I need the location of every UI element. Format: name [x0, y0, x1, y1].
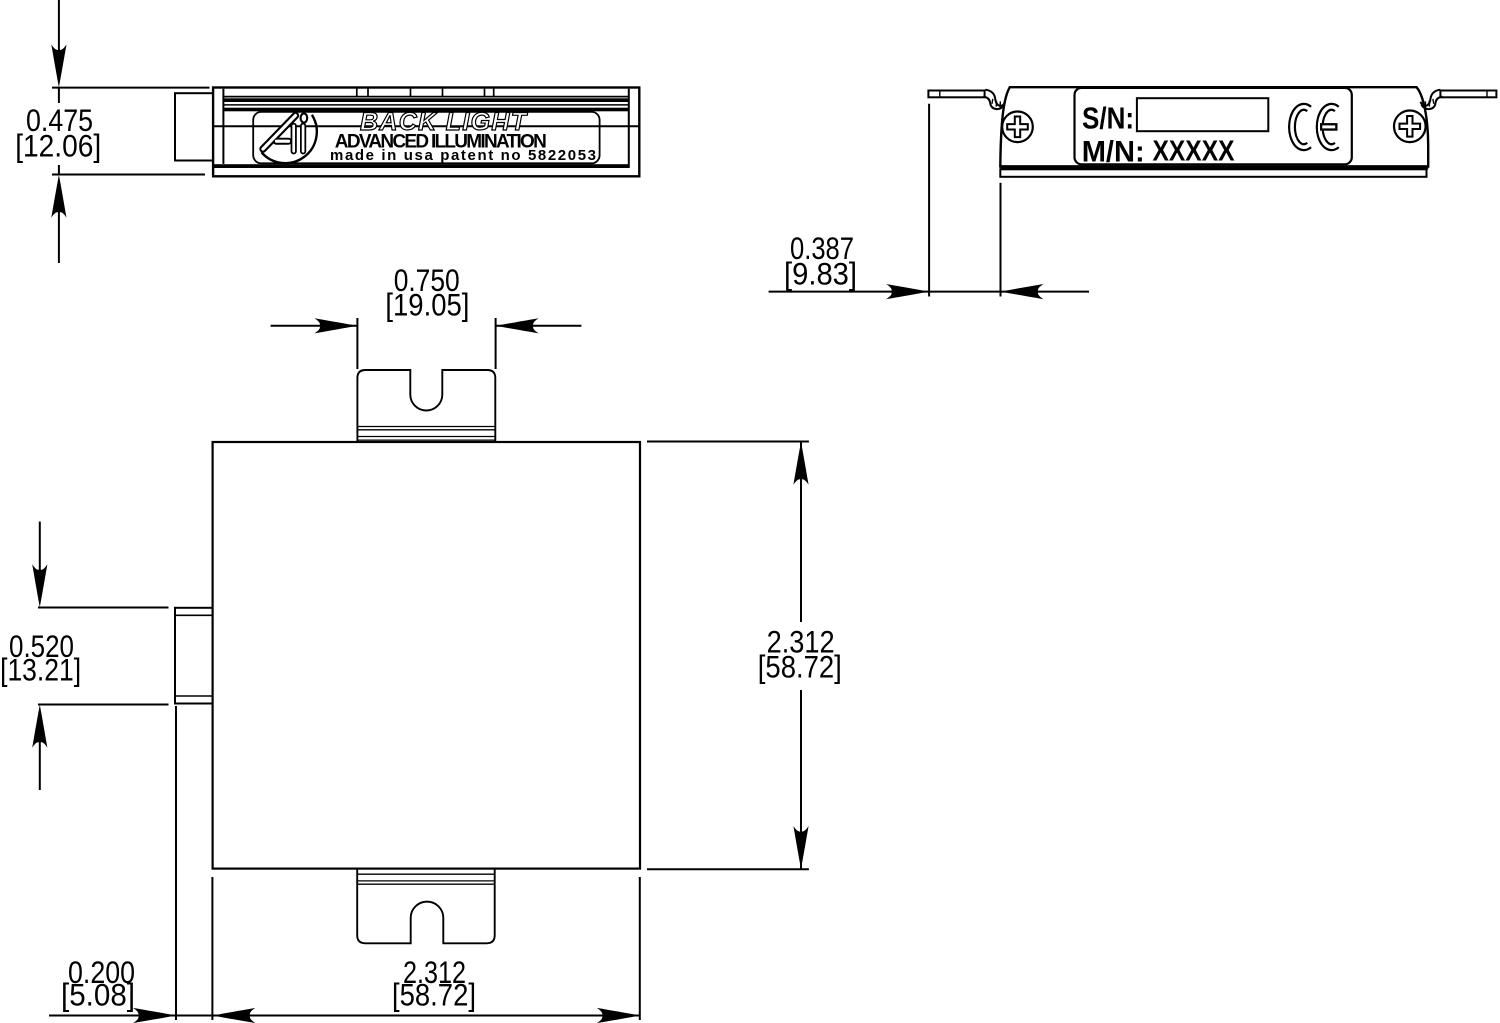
- svg-text:made in usa patent no 5822053: made in usa patent no 5822053: [330, 147, 596, 164]
- svg-text:[58.72]: [58.72]: [758, 649, 842, 685]
- svg-text:S/N:: S/N:: [1082, 101, 1134, 136]
- svg-text:[9.83]: [9.83]: [784, 256, 857, 292]
- svg-text:[19.05]: [19.05]: [385, 287, 469, 323]
- svg-text:[58.72]: [58.72]: [392, 977, 476, 1013]
- svg-text:[5.08]: [5.08]: [61, 977, 135, 1013]
- svg-text:M/N:: M/N:: [1082, 135, 1145, 168]
- svg-text:[13.21]: [13.21]: [0, 652, 81, 688]
- svg-text:XXXXX: XXXXX: [1153, 136, 1236, 168]
- svg-text:[12.06]: [12.06]: [15, 127, 101, 163]
